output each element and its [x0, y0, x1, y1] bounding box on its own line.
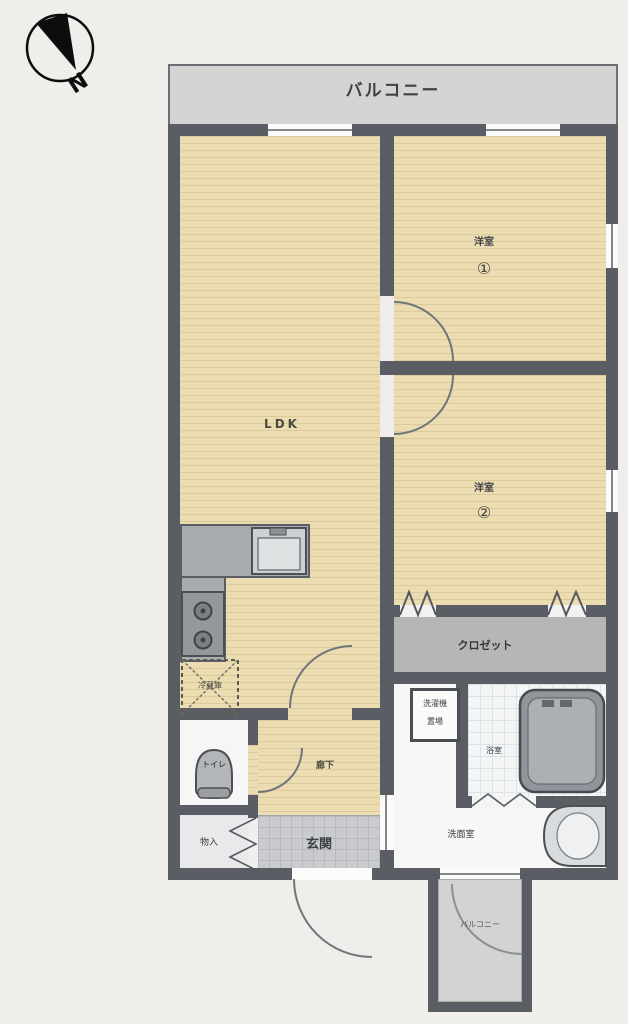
bedroom1-number: ① — [452, 260, 516, 278]
wall-closet-bottom — [394, 672, 618, 684]
bedroom1-label: 洋室 — [452, 237, 516, 249]
storage-door-opening — [248, 818, 258, 868]
door-arc-front-door — [294, 879, 372, 957]
balcony-bottom-label: バルコニー — [440, 920, 520, 929]
ldk-label: LDK — [232, 418, 332, 432]
compass-needle-icon — [36, 13, 76, 70]
laundry-label-line1: 洗濯機 — [413, 699, 457, 708]
floorplan-page: { "compass": { "north_label": "N" }, "la… — [0, 0, 628, 1024]
wall-bottom — [168, 868, 618, 880]
window-bedroom2-right — [606, 470, 618, 512]
window-bedroom1-right — [606, 224, 618, 268]
front-door-opening — [292, 868, 372, 880]
hallway-label: 廊下 — [300, 761, 350, 771]
bathroom-door-opening — [472, 796, 536, 808]
room-bathroom — [468, 684, 606, 796]
wall-bedroom-divider — [380, 361, 618, 375]
compass-north-label: N — [64, 68, 93, 99]
balcony-bottom-wall-right — [522, 879, 532, 1012]
washing-machine-space: 洗濯機 置場 — [410, 688, 460, 742]
storage-label: 物入 — [184, 838, 234, 848]
window-bedroom1-top — [486, 124, 560, 136]
entrance-label: 玄関 — [258, 838, 380, 853]
toilet-label: トイレ — [184, 760, 244, 769]
window-ldk — [268, 124, 352, 136]
wall-toilet-storage — [180, 805, 248, 815]
washroom-label: 洗面室 — [428, 830, 494, 840]
kitchen-counter-side — [180, 576, 226, 662]
balcony-bottom-wall-bottom — [428, 1002, 532, 1012]
washroom-door-opening — [380, 795, 394, 850]
bedroom2-label: 洋室 — [452, 483, 516, 495]
closet-label: クロゼット — [420, 640, 550, 653]
ldk-hallway-door-opening — [288, 708, 352, 720]
closet-door-opening-right — [548, 605, 586, 617]
kitchen-counter-top — [180, 524, 310, 578]
balcony-top: バルコニー — [168, 64, 618, 126]
wall-left — [168, 124, 180, 879]
balcony-bottom — [438, 879, 522, 1002]
wall-center-upper — [380, 136, 394, 296]
balcony-bottom-wall-left — [428, 879, 438, 1012]
wall-center-lower — [380, 437, 394, 795]
wall-center-bottom-stub — [380, 850, 394, 868]
bedroom2-number: ② — [452, 504, 516, 522]
balcony-top-label: バルコニー — [170, 82, 616, 102]
toilet-door-opening — [248, 745, 258, 795]
closet-door-opening-left — [400, 605, 436, 617]
laundry-label-line2: 置場 — [413, 717, 457, 726]
bathroom-label: 浴室 — [472, 746, 516, 755]
compass-icon: N — [14, 2, 106, 100]
refrigerator-label: 冷蔵庫 — [182, 681, 238, 690]
room-bedroom1 — [394, 136, 606, 361]
